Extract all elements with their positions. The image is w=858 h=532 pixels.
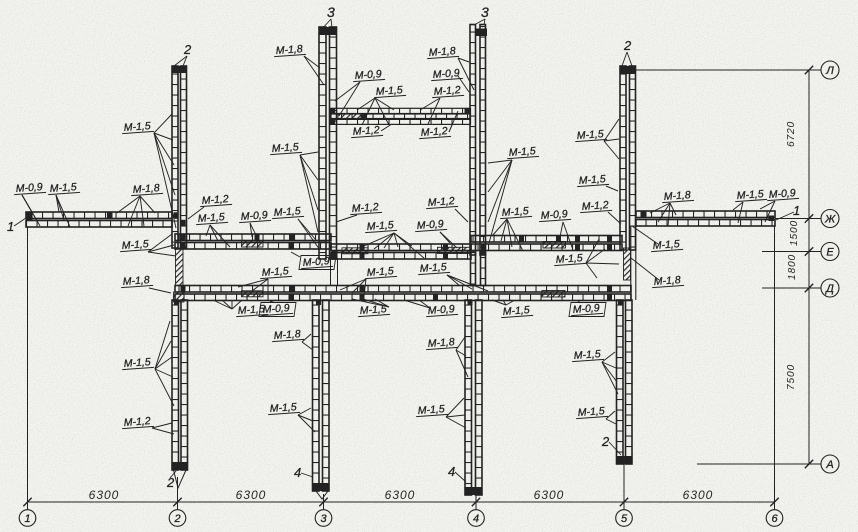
svg-text:6300: 6300 <box>236 488 267 502</box>
svg-text:2: 2 <box>173 513 180 525</box>
svg-text:2: 2 <box>623 38 632 53</box>
svg-text:3: 3 <box>320 513 327 525</box>
svg-text:5: 5 <box>621 513 628 525</box>
svg-text:3: 3 <box>327 4 335 20</box>
svg-text:2: 2 <box>601 434 610 449</box>
svg-text:1: 1 <box>7 219 14 234</box>
svg-text:6300: 6300 <box>89 488 120 502</box>
svg-text:1500: 1500 <box>789 220 800 246</box>
svg-text:4: 4 <box>448 464 455 479</box>
svg-text:6: 6 <box>771 513 778 525</box>
svg-text:3: 3 <box>481 4 489 20</box>
svg-text:2: 2 <box>183 42 192 57</box>
svg-text:1: 1 <box>793 203 800 218</box>
svg-text:Е: Е <box>826 246 834 258</box>
svg-text:1800: 1800 <box>787 254 798 280</box>
svg-text:6300: 6300 <box>534 488 565 502</box>
svg-text:Д: Д <box>824 283 834 295</box>
svg-text:1: 1 <box>24 513 30 525</box>
svg-text:7500: 7500 <box>786 364 797 390</box>
svg-text:4: 4 <box>473 513 479 525</box>
svg-text:4: 4 <box>294 465 301 480</box>
svg-text:6300: 6300 <box>683 488 714 502</box>
svg-text:Ж: Ж <box>824 213 836 225</box>
svg-text:6720: 6720 <box>786 121 797 147</box>
svg-text:А: А <box>825 459 833 471</box>
svg-text:Л: Л <box>825 65 834 77</box>
svg-text:6300: 6300 <box>385 488 416 502</box>
